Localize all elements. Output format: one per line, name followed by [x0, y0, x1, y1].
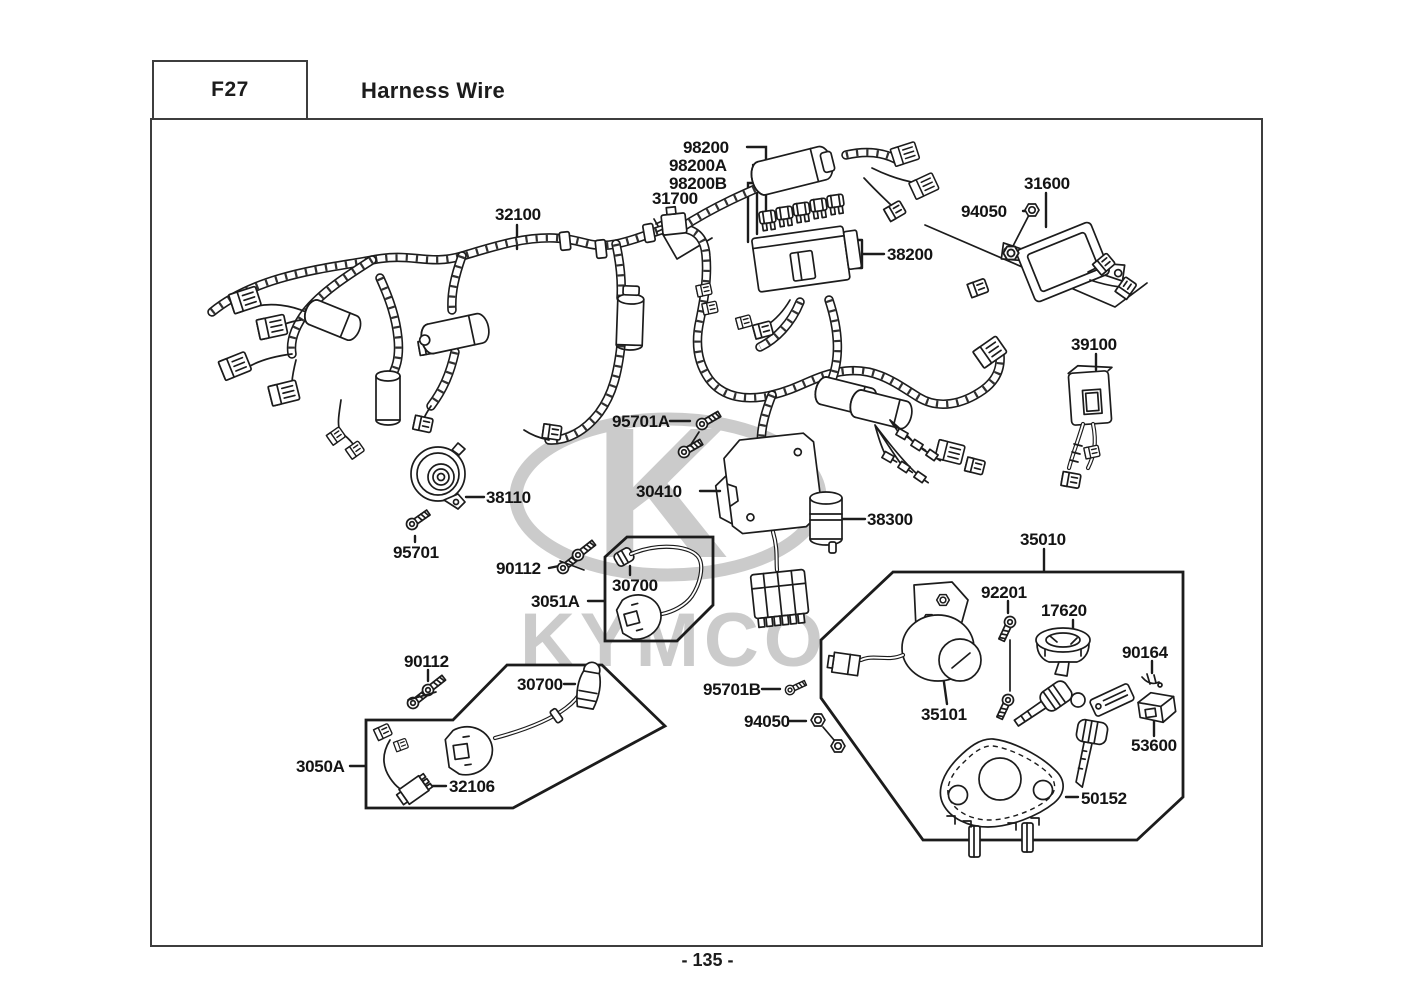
- relay-38300: [810, 492, 842, 553]
- part-label-3050a: 3050A: [296, 757, 345, 777]
- part-label-30410: 30410: [636, 482, 682, 502]
- part-label-31700: 31700: [652, 189, 698, 209]
- part-label-39100: 39100: [1071, 335, 1117, 355]
- coil-box-3050a: [366, 661, 665, 808]
- part-label-90112-lower: 90112: [404, 652, 449, 672]
- part-label-38110: 38110: [486, 488, 531, 508]
- section-code: F27: [211, 78, 249, 102]
- manual-page: F27 Harness Wire K KYMCO: [0, 0, 1415, 1000]
- part-label-95701a: 95701A: [612, 412, 670, 432]
- part-label-35101: 35101: [921, 705, 967, 725]
- relay-31700: [654, 206, 687, 236]
- fuses-98200: [759, 194, 845, 231]
- part-label-32100: 32100: [495, 205, 541, 225]
- terminal-fan: [875, 420, 942, 486]
- screw-90112-lower-2: [420, 673, 447, 697]
- part-label-95701b: 95701B: [703, 680, 761, 700]
- part-label-94050-top: 94050: [961, 202, 1007, 222]
- nut-94050-lower-1: [811, 714, 825, 726]
- ignition-switch-35101: [827, 582, 981, 681]
- bolt-92201-2: [995, 693, 1016, 721]
- nut-94050-lower-2: [831, 740, 845, 752]
- fuse-box-38200: [752, 194, 863, 292]
- part-label-92201: 92201: [981, 583, 1027, 603]
- section-code-box: F27: [152, 60, 308, 120]
- fuel-cap-17620: [1036, 628, 1090, 676]
- part-label-30700-lower: 30700: [517, 675, 563, 695]
- part-label-30700-upper: 30700: [612, 576, 658, 596]
- part-label-3051a: 3051A: [531, 592, 580, 612]
- part-label-94050-lower: 94050: [744, 712, 790, 732]
- part-label-98200a: 98200A: [669, 156, 727, 176]
- sub-cord-connector: [395, 773, 433, 807]
- part-label-90164: 90164: [1122, 643, 1168, 663]
- part-label-38200: 38200: [887, 245, 933, 265]
- part-label-50152: 50152: [1081, 789, 1127, 809]
- flasher-39100: [1061, 363, 1116, 488]
- part-label-90112-upper: 90112: [496, 559, 541, 579]
- part-label-38300: 38300: [867, 510, 913, 530]
- part-label-31600: 31600: [1024, 174, 1070, 194]
- regulator-31600: [996, 204, 1137, 320]
- bolt-95701: [404, 508, 431, 532]
- ignition-coil-body: [444, 723, 496, 777]
- part-label-35010: 35010: [1020, 530, 1066, 550]
- lock-53600: [1137, 690, 1177, 726]
- part-label-32106: 32106: [449, 777, 495, 797]
- part-label-17620: 17620: [1041, 601, 1087, 621]
- part-label-98200: 98200: [683, 138, 729, 158]
- bolt-92201-1: [997, 615, 1018, 643]
- page-title: Harness Wire: [361, 78, 505, 104]
- key-tag: [1089, 683, 1135, 717]
- part-label-53600: 53600: [1131, 736, 1177, 756]
- cdi-connector: [750, 569, 809, 627]
- part-label-95701: 95701: [393, 543, 439, 563]
- nut-94050-top: [1025, 204, 1039, 216]
- clip-90164: [1142, 674, 1162, 687]
- horn-38110: [411, 443, 465, 509]
